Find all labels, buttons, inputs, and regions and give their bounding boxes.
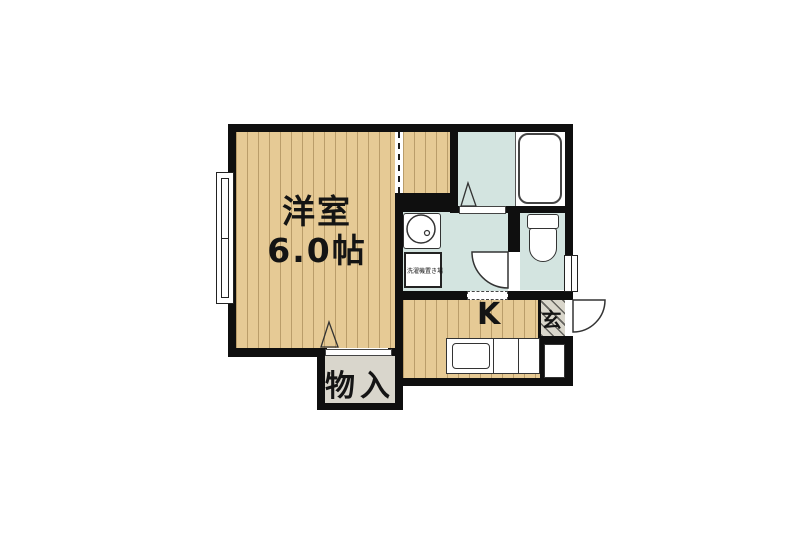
bathroom-floor [458,132,515,207]
western-room-size: 6.0帖 [238,232,396,271]
storage-label: 物入 [320,361,400,405]
left-window-divider [221,238,229,239]
wall-washroom-toilet [508,206,520,252]
front-door-opening [565,300,573,336]
floor-plan: 洗濯機置き場 洋室 6.0帖 K 玄 物入 [0,0,800,534]
wall-washroom-top [395,193,458,212]
entrance-cabinet [544,344,565,378]
toilet-door-opening [508,252,520,290]
left-window [216,172,234,304]
kitchen-sink [452,343,490,369]
toilet-tank [527,214,559,229]
wall-main-room-bottom [228,348,320,357]
bathtub [518,133,562,204]
front-door-arc [573,300,605,332]
dashed-partition [395,132,403,193]
kitchen-counter-divider-1 [493,338,494,374]
wall-kitchen-bottom [395,378,573,386]
washing-machine-space-label: 洗濯機置き場 [407,269,443,275]
kitchen-counter-divider-2 [518,338,519,374]
washing-machine-space: 洗濯機置き場 [404,252,442,288]
wall-top [228,124,573,132]
hallway-nook-floor [403,132,450,193]
toilet-window-divider [571,256,572,291]
wall-entrance-bottom [538,336,573,344]
wash-basin-vanity [403,213,441,249]
western-room-name: 洋室 [238,193,396,232]
entrance-label: 玄 [538,300,565,336]
toilet-bowl [529,228,557,262]
kitchen-label: K [477,297,500,332]
dashed-partition-line [398,132,400,193]
toilet-window [564,255,578,292]
bathroom-door-threshold [459,206,506,214]
western-room-label: 洋室 6.0帖 [238,193,396,271]
storage-door-threshold [325,349,392,356]
wall-nook-bathroom [450,124,458,213]
